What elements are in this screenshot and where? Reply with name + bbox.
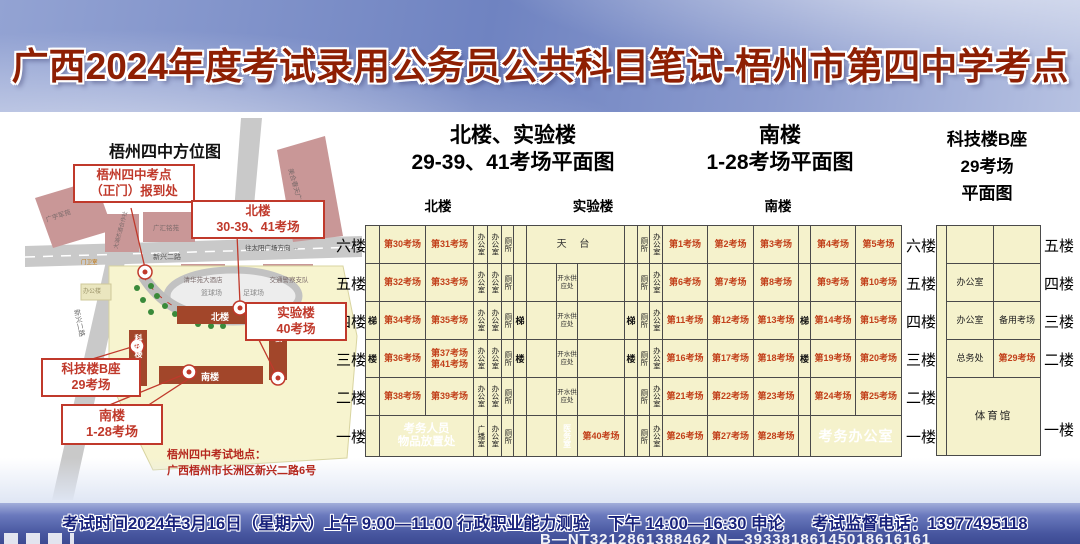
exam-room-cell: 第17考场 <box>708 340 754 378</box>
facility-cell: 厕所 <box>638 264 650 302</box>
bottom-wash <box>0 458 1080 503</box>
terrace-cell: 天 台 <box>527 226 625 264</box>
north-lab-plan-title-line2: 29-39、41考场平面图 <box>365 149 661 176</box>
lab-building-sub-label: 实验楼 <box>548 195 638 215</box>
exam-room-cell: 第13考场 <box>754 302 799 340</box>
facility-cell: 办公室 <box>488 226 502 264</box>
callout-lab: 实验楼 40考场 <box>245 302 347 341</box>
facility-cell: 厕所 <box>638 340 650 378</box>
top-banner: 广西2024年度考试录用公务员公共科目笔试-梧州市第四中学考点 <box>0 0 1080 112</box>
stairwell-cell <box>799 226 811 264</box>
stairwell-cell: 梯 <box>514 302 527 340</box>
water-supply-cell: 开水供应处 <box>557 340 578 378</box>
exam-room-cell: 第23考场 <box>754 378 799 416</box>
facility-cell: 办公室 <box>488 264 502 302</box>
south-building-sub-label: 南楼 <box>738 195 818 215</box>
stairwell-cell: 楼 <box>799 340 811 378</box>
stairwell-cell <box>514 416 527 457</box>
exam-room-cell: 第5考场 <box>856 226 902 264</box>
facility-cell: 厕所 <box>638 378 650 416</box>
stairwell-cell <box>366 226 380 264</box>
exam-room-cell: 第35考场 <box>426 302 474 340</box>
exam-room-cell: 第3考场 <box>754 226 799 264</box>
stairwell-cell: 楼 <box>625 340 638 378</box>
exam-room-cell: 第18考场 <box>754 340 799 378</box>
callout-tech-line1: 科技楼B座 <box>46 362 136 378</box>
exam-room-cell: 第30考场 <box>380 226 426 264</box>
exam-room-cell: 第14考场 <box>811 302 856 340</box>
watermark-text: B—NT3212861388462 N—39338186145018616161 <box>540 531 931 544</box>
floor-label: 五楼 <box>906 273 936 294</box>
facility-cell: 办公室 <box>650 264 663 302</box>
floor-label: 一楼 <box>906 426 936 447</box>
road-direction-label: 往太阳广场方向 → <box>245 242 299 252</box>
tech-plan-title-line2: 29考场 <box>928 153 1046 180</box>
empty-cell <box>527 302 557 340</box>
empty-cell <box>937 226 947 456</box>
tech-building-label: 科技楼 <box>133 334 144 358</box>
facility-cell: 厕所 <box>638 226 650 264</box>
footer-bar: 考试时间2024年3月16日（星期六）上午 9:00—11:00 行政职业能力测… <box>0 503 1080 544</box>
facility-cell: 厕所 <box>502 378 514 416</box>
road-label: 新兴二路 <box>153 252 181 262</box>
north-lab-south-floorplan-table: 第30考场第31考场办公室办公室厕所天 台厕所办公室第1考场第2考场第3考场第4… <box>365 225 902 457</box>
floor-label: 三楼 <box>1044 311 1074 332</box>
exam-room-cell: 第11考场 <box>663 302 708 340</box>
facility-cell: 厕所 <box>502 416 514 457</box>
exam-room-cell: 第36考场 <box>380 340 426 378</box>
exam-room-cell: 第37考场第41考场 <box>426 340 474 378</box>
facility-cell: 厕所 <box>502 264 514 302</box>
stairwell-cell <box>366 378 380 416</box>
tech-plan-title-line3: 平面图 <box>928 180 1046 207</box>
floorplan-grid: 第30考场第31考场办公室办公室厕所天 台厕所办公室第1考场第2考场第3考场第4… <box>365 225 902 457</box>
empty-cell <box>527 416 557 457</box>
exam-room-cell: 第39考场 <box>426 378 474 416</box>
stairwell-cell <box>625 226 638 264</box>
exam-room-cell: 第25考场 <box>856 378 902 416</box>
facility-cell: 办公室 <box>488 378 502 416</box>
facility-cell: 办公室 <box>474 226 488 264</box>
facility-cell: 厕所 <box>502 302 514 340</box>
office-cell: 办公室 <box>947 264 994 302</box>
exam-room-cell: 第20考场 <box>856 340 902 378</box>
floor-label: 六楼 <box>336 235 366 256</box>
facility-cell: 办公室 <box>650 226 663 264</box>
poster-title: 广西2024年度考试录用公务员公共科目笔试-梧州市第四中学考点 <box>0 36 1080 90</box>
office-cell: 总务处 <box>947 340 994 378</box>
south-plan-title-line2: 1-28考场平面图 <box>655 149 905 176</box>
stairwell-cell: 梯 <box>799 302 811 340</box>
stairwell-cell: 梯 <box>366 302 380 340</box>
stairwell-cell <box>514 226 527 264</box>
facility-cell: 厕所 <box>502 226 514 264</box>
exam-time-text: 考试时间2024年3月16日（星期六）上午 9:00—11:00 行政职业能力测… <box>62 510 589 534</box>
exam-room-cell: 第31考场 <box>426 226 474 264</box>
floor-label: 三楼 <box>336 349 366 370</box>
callout-gate-line2: （正门）报到处 <box>78 184 190 200</box>
callout-north: 北楼 30-39、41考场 <box>191 200 325 239</box>
building-name: 清华苑大酒店 <box>183 274 223 284</box>
south-plan-title-line1: 南楼 <box>655 122 905 149</box>
floor-label: 五楼 <box>336 273 366 294</box>
facility-cell: 办公室 <box>650 378 663 416</box>
callout-tech: 科技楼B座 29考场 <box>41 358 141 397</box>
medical-room-cell: 医务室 <box>557 416 578 457</box>
facility-cell: 厕所 <box>638 416 650 457</box>
callout-lab-line2: 40考场 <box>250 322 342 338</box>
facility-cell: 办公室 <box>474 264 488 302</box>
north-lab-plan-title-line1: 北楼、实验楼 <box>365 122 661 149</box>
facility-cell: 办公室 <box>474 378 488 416</box>
stairwell-cell <box>625 378 638 416</box>
south-plan-title: 南楼 1-28考场平面图 <box>655 122 905 177</box>
empty-cell <box>994 264 1041 302</box>
stairwell-cell <box>625 264 638 302</box>
tech-building-floorplan-table: 办公室办公室备用考场总务处第29考场体育馆 <box>936 225 1041 456</box>
building-name: 广汇铭苑 <box>153 222 179 232</box>
stairwell-cell <box>514 378 527 416</box>
office-building-label: 办公楼 <box>83 286 101 295</box>
exam-room-cell: 第12考场 <box>708 302 754 340</box>
facility-cell: 办公室 <box>488 302 502 340</box>
empty-cell <box>947 226 994 264</box>
gatehouse-label: 门卫室 <box>81 258 98 266</box>
facility-cell: 办公室 <box>488 340 502 378</box>
exam-room-cell: 第34考场 <box>380 302 426 340</box>
stairwell-cell <box>366 416 380 457</box>
exam-room-cell: 第26考场 <box>663 416 708 457</box>
stairwell-cell <box>799 378 811 416</box>
callout-tech-line2: 29考场 <box>46 378 136 394</box>
exam-room-cell: 第7考场 <box>708 264 754 302</box>
water-supply-cell: 开水供应处 <box>557 302 578 340</box>
stairwell-cell: 楼 <box>514 340 527 378</box>
floor-label: 四楼 <box>906 311 936 332</box>
exam-room-cell: 第1考场 <box>663 226 708 264</box>
office-cell: 办公室 <box>947 302 994 340</box>
south-building-label: 南楼 <box>201 370 219 383</box>
callout-south-line1: 南楼 <box>66 408 158 424</box>
stairwell-cell <box>799 264 811 302</box>
cutoff-text-blob <box>4 533 74 544</box>
exam-address-line2: 广西梧州市长洲区新兴二路6号 <box>167 462 316 478</box>
exam-room-cell: 第10考场 <box>856 264 902 302</box>
exam-room-cell: 第8考场 <box>754 264 799 302</box>
empty-cell <box>578 340 625 378</box>
facility-cell: 厕所 <box>502 340 514 378</box>
stairwell-cell: 楼 <box>366 340 380 378</box>
facility-cell: 办公室 <box>474 302 488 340</box>
stairwell-cell <box>366 264 380 302</box>
water-supply-cell: 开水供应处 <box>557 378 578 416</box>
facility-cell: 办公室 <box>474 340 488 378</box>
exam-room-cell: 第4考场 <box>811 226 856 264</box>
facility-cell: 办公室 <box>650 302 663 340</box>
location-map-panel: 梧州四中方位图 梧州四中考点 （正门）报到处 北楼 30-39、41考场 实验楼… <box>25 118 362 500</box>
exam-room-cell: 第40考场 <box>578 416 625 457</box>
stairwell-cell <box>799 416 811 457</box>
floor-label: 六楼 <box>906 235 936 256</box>
facility-cell: 办公室 <box>650 340 663 378</box>
exam-room-cell: 第2考场 <box>708 226 754 264</box>
floor-label: 一楼 <box>1044 419 1074 440</box>
north-lab-plan-title: 北楼、实验楼 29-39、41考场平面图 <box>365 122 661 177</box>
empty-cell <box>527 340 557 378</box>
building-name: 交通警察支队 <box>267 274 311 284</box>
callout-south-line2: 1-28考场 <box>66 424 158 440</box>
floor-label: 二楼 <box>336 387 366 408</box>
facility-cell: 厕所 <box>638 302 650 340</box>
north-building-sub-label: 北楼 <box>398 195 478 215</box>
exam-room-cell: 第29考场 <box>994 340 1041 378</box>
empty-cell <box>527 264 557 302</box>
callout-gate-line1: 梧州四中考点 <box>78 168 190 184</box>
callout-north-line2: 30-39、41考场 <box>196 220 320 236</box>
floorplan-grid: 办公室办公室备用考场总务处第29考场体育馆 <box>936 225 1041 456</box>
empty-cell <box>578 378 625 416</box>
floor-label: 三楼 <box>906 349 936 370</box>
exam-room-cell: 第27考场 <box>708 416 754 457</box>
gym-cell: 体育馆 <box>947 378 1041 456</box>
exam-room-cell: 第22考场 <box>708 378 754 416</box>
exam-room-cell: 第24考场 <box>811 378 856 416</box>
facility-cell: 办公室 <box>650 416 663 457</box>
stairwell-cell: 梯 <box>625 302 638 340</box>
arrow-icon: → <box>292 245 299 252</box>
tech-plan-title-line1: 科技楼B座 <box>928 126 1046 153</box>
floor-label: 二楼 <box>906 387 936 408</box>
callout-south: 南楼 1-28考场 <box>61 404 163 445</box>
office-cell: 备用考场 <box>994 302 1041 340</box>
water-supply-cell: 开水供应处 <box>557 264 578 302</box>
empty-cell <box>527 378 557 416</box>
north-building-label: 北楼 <box>211 310 229 323</box>
basketball-court-label: 篮球场 <box>201 288 222 298</box>
facility-cell: 广播室 <box>474 416 488 457</box>
exam-site-poster: 广西2024年度考试录用公务员公共科目笔试-梧州市第四中学考点 <box>0 0 1080 544</box>
exam-room-cell: 第6考场 <box>663 264 708 302</box>
floor-label: 一楼 <box>336 426 366 447</box>
exam-room-cell: 第9考场 <box>811 264 856 302</box>
stairwell-cell <box>625 416 638 457</box>
empty-cell <box>578 302 625 340</box>
tech-plan-title: 科技楼B座 29考场 平面图 <box>928 126 1046 208</box>
exam-room-cell: 第28考场 <box>754 416 799 457</box>
facility-cell: 办公室 <box>488 416 502 457</box>
exam-room-cell: 第32考场 <box>380 264 426 302</box>
callout-north-line1: 北楼 <box>196 204 320 220</box>
empty-cell <box>578 264 625 302</box>
exam-room-cell: 第16考场 <box>663 340 708 378</box>
admin-office-cell: 考务办公室 <box>811 416 902 457</box>
floor-label: 二楼 <box>1044 349 1074 370</box>
road-direction-text: 往太阳广场方向 <box>245 245 291 252</box>
exam-room-cell: 第19考场 <box>811 340 856 378</box>
exam-room-cell: 第33考场 <box>426 264 474 302</box>
exam-room-cell: 第21考场 <box>663 378 708 416</box>
stairwell-cell <box>514 264 527 302</box>
admin-room-cell: 考务人员物品放置处 <box>380 416 474 457</box>
callout-gate: 梧州四中考点 （正门）报到处 <box>73 164 195 203</box>
floor-label: 五楼 <box>1044 235 1074 256</box>
empty-cell <box>994 226 1041 264</box>
exam-room-cell: 第38考场 <box>380 378 426 416</box>
exam-address-line1: 梧州四中考试地点： <box>167 446 266 462</box>
callout-lab-line1: 实验楼 <box>250 306 342 322</box>
floor-label: 四楼 <box>1044 273 1074 294</box>
exam-room-cell: 第15考场 <box>856 302 902 340</box>
map-title: 梧州四中方位图 <box>25 138 305 162</box>
football-field-label: 足球场 <box>243 288 264 298</box>
